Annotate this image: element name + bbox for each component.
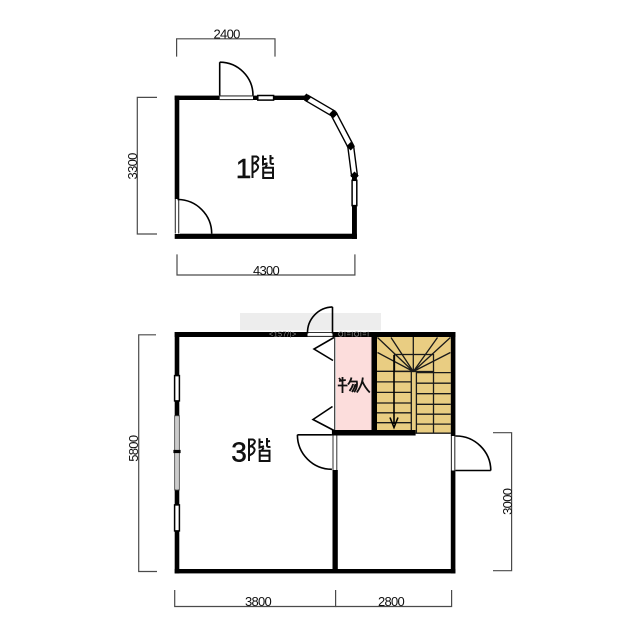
svg-text:1: 1: [236, 153, 252, 184]
svg-text:3: 3: [231, 437, 247, 468]
svg-text:<157/|>: <157/|>: [269, 332, 297, 339]
svg-text:3300: 3300: [125, 153, 140, 180]
svg-text:2400: 2400: [214, 26, 241, 41]
svg-text:5800: 5800: [126, 435, 141, 462]
svg-text:4300: 4300: [253, 263, 280, 278]
svg-text:3800: 3800: [245, 594, 272, 609]
svg-text:3000: 3000: [500, 488, 515, 515]
svg-text:OI=IOI=I: OI=IOI=I: [338, 332, 370, 339]
svg-text:2800: 2800: [378, 594, 405, 609]
